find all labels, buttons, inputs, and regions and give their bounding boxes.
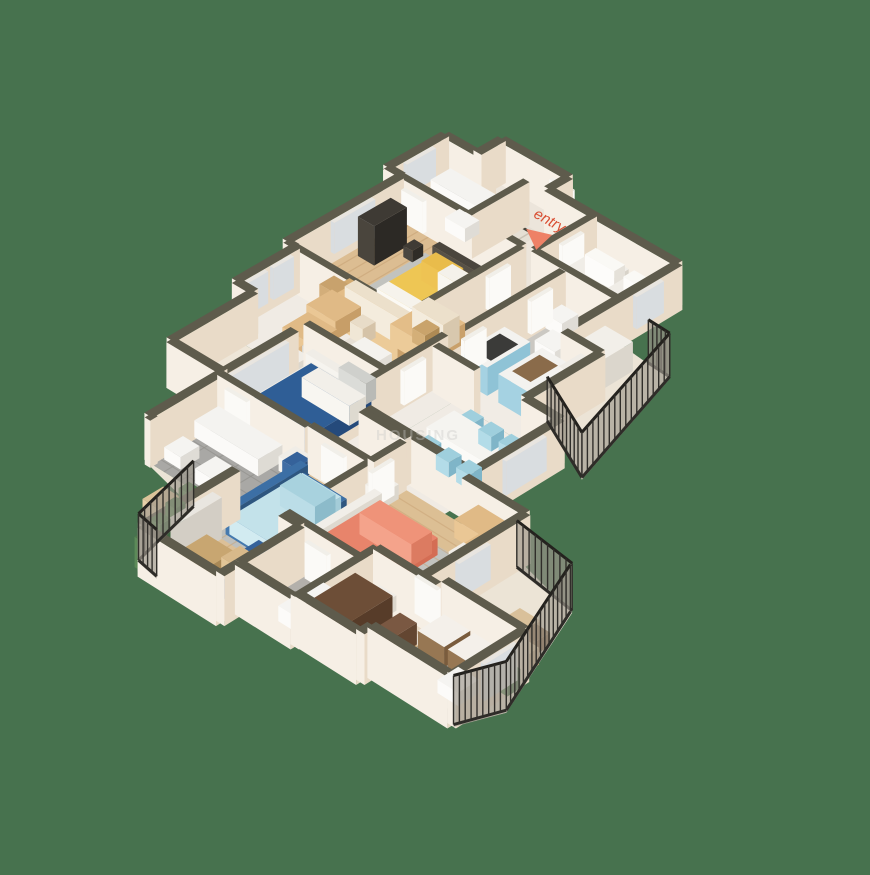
svg-text:HOUSING: HOUSING bbox=[376, 427, 460, 444]
